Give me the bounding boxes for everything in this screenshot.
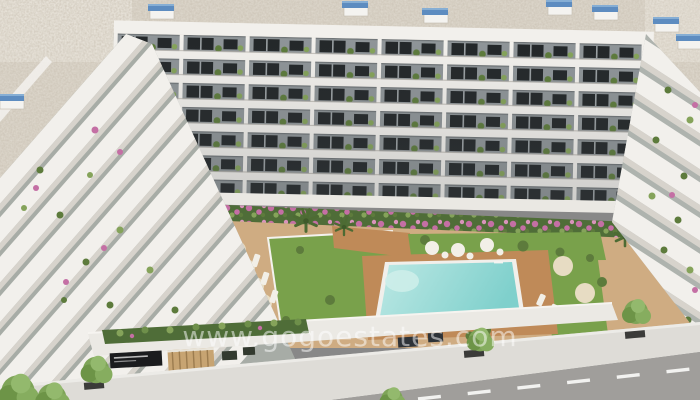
pool-steps (385, 270, 419, 292)
roof-skylight (676, 34, 700, 49)
render-canvas: www.gogoestates.com (0, 0, 700, 400)
pool-ladder (494, 261, 503, 263)
watermark-text: www.gogoestates.com (182, 320, 517, 353)
entrance-sign (110, 351, 163, 369)
roof-skylight (653, 17, 679, 32)
roof-skylight (0, 94, 24, 109)
roof-skylight (592, 5, 618, 20)
roof-skylight (546, 0, 572, 15)
roof-skylight (422, 8, 448, 23)
roof-skylight (342, 1, 368, 16)
roof-skylight (148, 4, 174, 19)
architectural-rendering: www.gogoestates.com (0, 0, 700, 400)
